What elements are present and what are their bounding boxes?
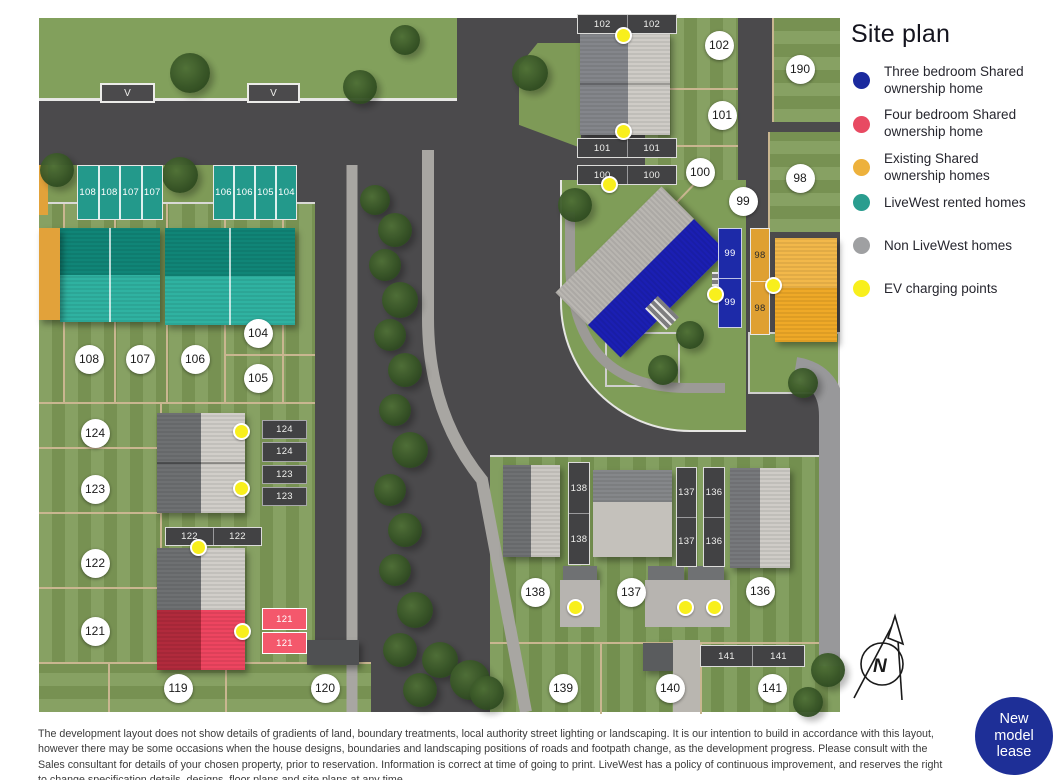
- tree: [470, 676, 504, 710]
- plot-circle-122: 122: [81, 549, 110, 578]
- badge-line: lease: [997, 744, 1032, 761]
- legend-item-2: Four bedroom Shared ownership home: [853, 107, 1058, 140]
- plot-circle-106: 106: [181, 345, 210, 374]
- badge-line: New: [999, 711, 1028, 728]
- parking-space-123: 123: [262, 465, 307, 484]
- ev-charging-point: [234, 623, 251, 640]
- ev-charging-point: [707, 286, 724, 303]
- ev-charging-point: [615, 27, 632, 44]
- tree: [40, 153, 74, 187]
- north-label: N: [873, 656, 888, 677]
- building-house-137: [593, 470, 672, 557]
- parking-space-98: 98: [751, 229, 769, 281]
- ev-charging-point: [677, 599, 694, 616]
- parking-strip-124: 124124123123: [262, 420, 307, 506]
- parking-space-108: 108: [98, 166, 120, 219]
- plot-circle-120: 120: [311, 674, 340, 703]
- legend: Three bedroom Shared ownership homeFour …: [853, 64, 1058, 323]
- parking-strip-101: 101101: [577, 138, 677, 158]
- building-house-123-124: [157, 413, 245, 513]
- parking-strip-138: 138138: [568, 462, 590, 565]
- legend-label: Existing Shared ownership homes: [884, 151, 1036, 184]
- tree: [360, 185, 390, 215]
- plot-circle-100: 100: [686, 158, 715, 187]
- legend-label: Non LiveWest homes: [884, 238, 1036, 255]
- plot-circle-123: 123: [81, 475, 110, 504]
- parking-space-100: 100: [627, 166, 677, 184]
- parking-space-106: 106: [233, 166, 254, 219]
- legend-item-1: Three bedroom Shared ownership home: [853, 64, 1058, 97]
- disclaimer-text: The development layout does not show det…: [38, 727, 950, 780]
- tree: [811, 653, 845, 687]
- plot-circle-124: 124: [81, 419, 110, 448]
- parking-space-107: 107: [119, 166, 141, 219]
- parking-strip-108: 108108107107: [77, 165, 163, 220]
- building-existing-west: [39, 228, 60, 320]
- tree: [392, 432, 428, 468]
- ev-charging-point: [601, 176, 618, 193]
- parking-space-138: 138: [569, 463, 589, 513]
- ev-charging-point: [233, 423, 250, 440]
- tree: [793, 687, 823, 717]
- tree: [648, 355, 678, 385]
- plot-circle-140: 140: [656, 674, 685, 703]
- building-house-121-122: [157, 548, 245, 670]
- parking-space-121: 121: [262, 632, 307, 654]
- garage-140: [643, 643, 675, 671]
- legend-label: EV charging points: [884, 281, 1036, 298]
- building-house-101-102: [580, 33, 670, 135]
- tree: [170, 53, 210, 93]
- plot-circle-119: 119: [164, 674, 193, 703]
- parking-space-136: 136: [704, 517, 724, 567]
- legend-item-5: Non LiveWest homes: [853, 237, 1058, 254]
- tree: [382, 282, 418, 318]
- parking-space-101: 101: [627, 139, 677, 157]
- parking-space-101: 101: [578, 139, 627, 157]
- ev-charging-point: [190, 539, 207, 556]
- tree: [379, 394, 411, 426]
- ev-charging-point: [567, 599, 584, 616]
- legend-dot: [853, 116, 870, 133]
- parking-strip-106: 106106105104: [213, 165, 297, 220]
- tree: [676, 321, 704, 349]
- tree: [390, 25, 420, 55]
- parking-strip-121: 121121: [262, 608, 307, 654]
- legend-dot: [853, 159, 870, 176]
- parking-space-123: 123: [262, 487, 307, 506]
- tree: [788, 368, 818, 398]
- plot-circle-99: 99: [729, 187, 758, 216]
- building-house-138: [503, 465, 560, 557]
- parking-space-124: 124: [262, 420, 307, 439]
- ev-charging-point: [765, 277, 782, 294]
- tree: [512, 55, 548, 91]
- parking-space-108: 108: [78, 166, 98, 219]
- parking-space-137: 137: [677, 468, 696, 517]
- parking-space-136: 136: [704, 468, 724, 517]
- parking-space-141: 141: [701, 646, 752, 666]
- plot-circle-108: 108: [75, 345, 104, 374]
- tree: [374, 474, 406, 506]
- parking-space-99: 99: [719, 278, 741, 328]
- plot-circle-121: 121: [81, 617, 110, 646]
- tree: [343, 70, 377, 104]
- parking-space-141: 141: [752, 646, 804, 666]
- parking-space-102: 102: [627, 15, 677, 33]
- visitor-bay: V: [100, 83, 155, 103]
- legend-dot: [853, 280, 870, 297]
- visitor-bay: V: [247, 83, 300, 103]
- parking-space-99: 99: [719, 229, 741, 278]
- legend-dot: [853, 237, 870, 254]
- badge-line: model: [994, 728, 1034, 745]
- parking-space-124: 124: [262, 442, 307, 461]
- site-map: 1021021011011001001081081071071061061051…: [39, 18, 840, 712]
- plot-circle-136: 136: [746, 577, 775, 606]
- new-model-lease-badge: Newmodellease: [975, 697, 1053, 775]
- legend-label: LiveWest rented homes: [884, 195, 1036, 212]
- parking-space-138: 138: [569, 513, 589, 564]
- plot-circle-105: 105: [244, 364, 273, 393]
- north-arrow: N: [848, 612, 912, 706]
- tree: [558, 188, 592, 222]
- plot-circle-138: 138: [521, 578, 550, 607]
- parking-space-122: 122: [213, 528, 261, 545]
- parking-strip-122: 122122: [165, 527, 262, 546]
- tree: [374, 319, 406, 351]
- plot-circle-98: 98: [786, 164, 815, 193]
- legend-dot: [853, 194, 870, 211]
- tree: [403, 673, 437, 707]
- legend-label: Four bedroom Shared ownership home: [884, 107, 1036, 140]
- tree: [397, 592, 433, 628]
- plot-circle-104: 104: [244, 319, 273, 348]
- tree: [383, 633, 417, 667]
- tree: [369, 249, 401, 281]
- site-plan-page: 1021021011011001001081081071071061061051…: [0, 0, 1059, 780]
- parking-strip-99: 9999: [718, 228, 742, 328]
- plot-circle-101: 101: [708, 101, 737, 130]
- parking-strip-141: 141141: [700, 645, 805, 667]
- building-existing-east: [775, 238, 837, 342]
- plot-circle-137: 137: [617, 578, 646, 607]
- building-rented-107-108: [60, 228, 160, 322]
- parking-space-105: 105: [254, 166, 275, 219]
- garage-120: [307, 640, 359, 665]
- parking-space-104: 104: [275, 166, 296, 219]
- legend-item-3: Existing Shared ownership homes: [853, 151, 1058, 184]
- legend-item-4: LiveWest rented homes: [853, 194, 1058, 211]
- ev-charging-point: [615, 123, 632, 140]
- tree: [388, 353, 422, 387]
- ev-charging-point: [706, 599, 723, 616]
- parking-strip-100: 100100: [577, 165, 677, 185]
- tree: [379, 554, 411, 586]
- plot-circle-139: 139: [549, 674, 578, 703]
- ev-charging-point: [233, 480, 250, 497]
- parking-strip-137: 137137: [676, 467, 697, 567]
- parking-strip-136: 136136: [703, 467, 725, 567]
- tree: [162, 157, 198, 193]
- legend-label: Three bedroom Shared ownership home: [884, 64, 1036, 97]
- plot-circle-107: 107: [126, 345, 155, 374]
- legend-dot: [853, 72, 870, 89]
- building-house-136: [730, 468, 790, 568]
- tree: [388, 513, 422, 547]
- parking-space-106: 106: [214, 166, 233, 219]
- parking-space-121: 121: [262, 608, 307, 630]
- plot-circle-190: 190: [786, 55, 815, 84]
- building-rented-104-106: [165, 228, 295, 325]
- tree: [378, 213, 412, 247]
- plot-circle-102: 102: [705, 31, 734, 60]
- parking-space-137: 137: [677, 517, 696, 567]
- plot-circle-141: 141: [758, 674, 787, 703]
- legend-item-6: EV charging points: [853, 280, 1058, 297]
- parking-space-107: 107: [141, 166, 163, 219]
- legend-title: Site plan: [851, 20, 950, 49]
